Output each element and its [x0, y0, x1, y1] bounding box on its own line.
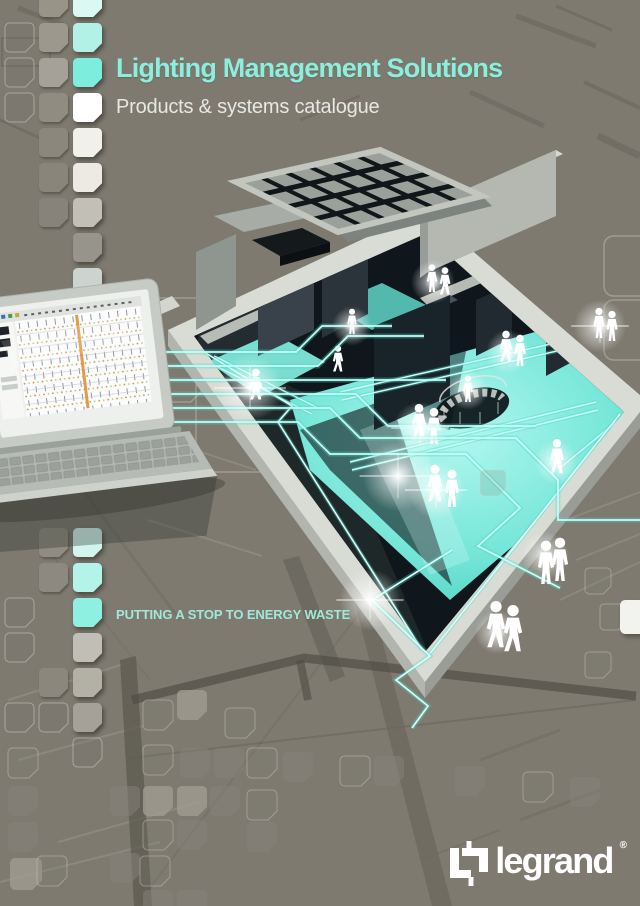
legrand-wordmark: legrand [495, 839, 612, 883]
page-subtitle: Products & systems catalogue [116, 96, 502, 119]
tagline: PUTTING A STOP TO ENERGY WASTE [116, 607, 350, 622]
title-block: Lighting Management Solutions Products &… [116, 53, 502, 119]
catalogue-cover: Lighting Management Solutions Products &… [0, 0, 640, 906]
legrand-logo: legrand ® [450, 839, 627, 887]
page-title: Lighting Management Solutions [116, 53, 502, 84]
legrand-logo-mark-icon [450, 841, 488, 887]
cover-illustration [0, 0, 640, 906]
registered-mark-icon: ® [620, 840, 627, 851]
